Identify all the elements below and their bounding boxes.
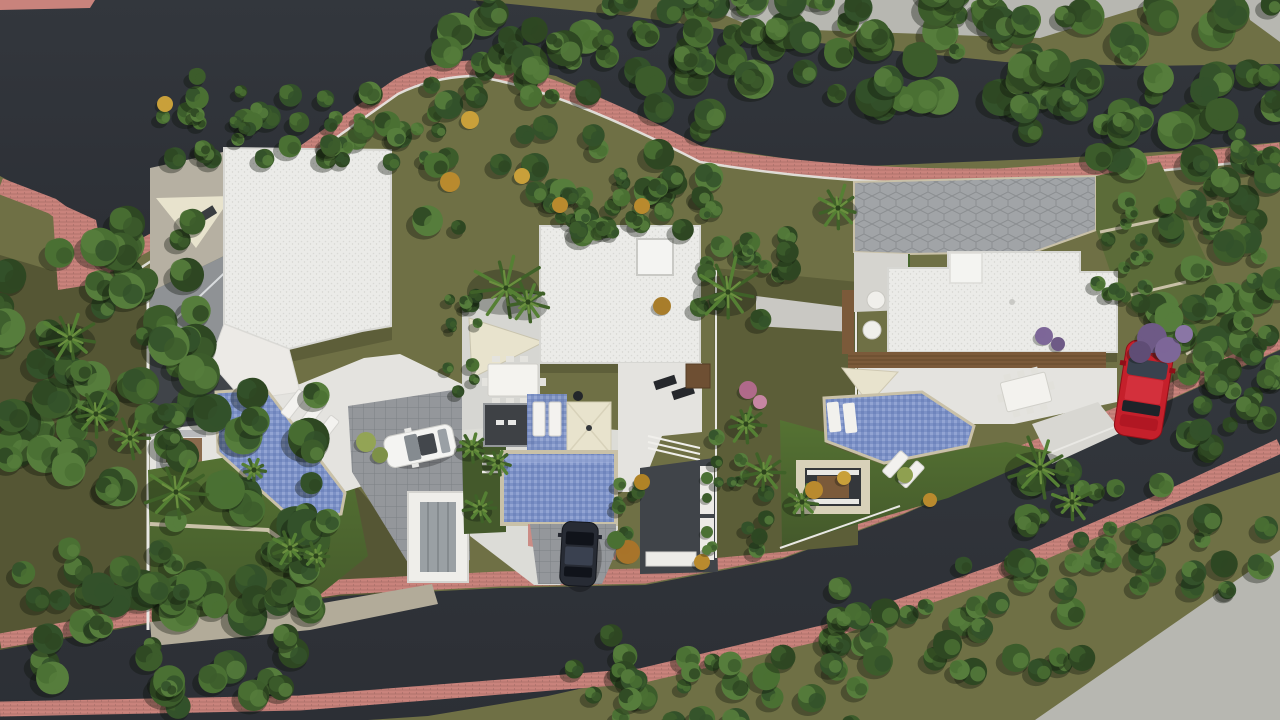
dining-table <box>488 364 538 396</box>
middle-roof-group <box>540 226 700 373</box>
lounger <box>533 402 545 436</box>
roof-vent <box>1009 299 1015 305</box>
pool-step <box>505 455 613 463</box>
wood-table <box>686 364 710 388</box>
closed-parasol-icon <box>573 391 583 401</box>
middle-pool <box>502 452 616 524</box>
rear-glass <box>564 566 592 577</box>
west-gate <box>408 492 468 582</box>
east-driveway-hex-pavers <box>854 176 1096 254</box>
roof <box>564 546 593 565</box>
west-villa-roof <box>224 148 391 349</box>
roof-volume <box>950 253 982 283</box>
aerial-render-stage <box>0 0 1280 720</box>
skylight <box>637 239 673 275</box>
windshield <box>565 531 594 545</box>
lounger <box>549 402 561 436</box>
middle-villa-roof <box>540 226 700 363</box>
site-plan-canvas <box>0 0 1280 720</box>
bench <box>646 552 696 566</box>
